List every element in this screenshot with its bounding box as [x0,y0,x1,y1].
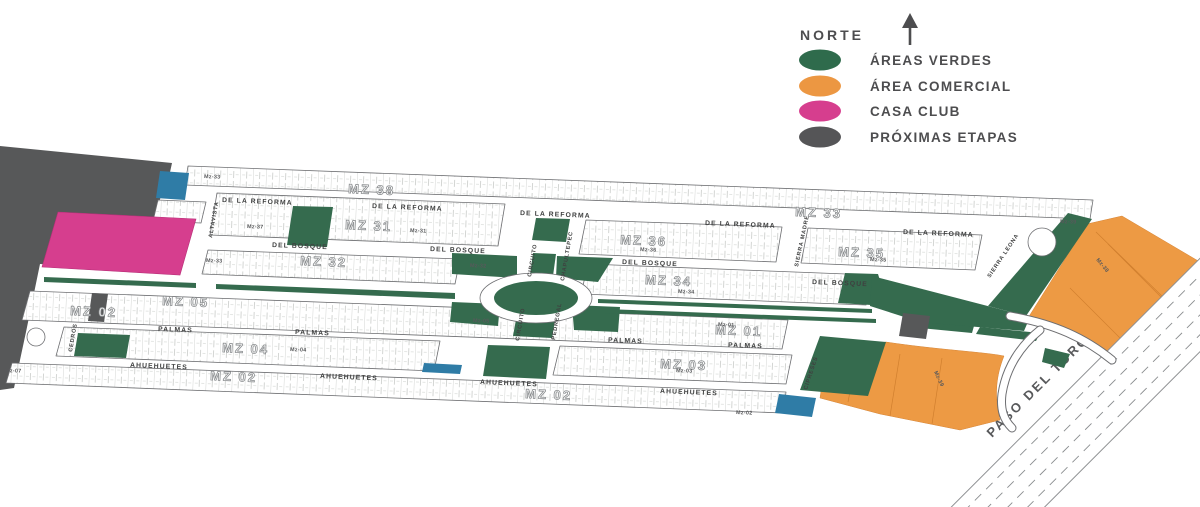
block-label-small: Mz-39 [1060,219,1077,226]
block-label: MZ 38 [348,181,395,198]
block-label-small: Mz-31 [410,228,427,235]
green-park-central [483,345,550,379]
master-plan-svg: PASO DEL TORO [0,0,1200,507]
block-label-small: Mz-33 [206,258,223,265]
north-label: NORTE [800,27,864,43]
block-label: MZ 34 [645,272,692,289]
roundabout-center [494,281,578,315]
block-label-small: Mz-36 [640,247,657,254]
legend-item-area-comercial: ÁREA COMERCIAL [799,76,1011,97]
block-label-small: Mz-37 [247,224,264,231]
street-label: PALMAS [728,342,763,350]
legend-item-label: CASA CLUB [870,104,961,119]
legend-item-label: ÁREA COMERCIAL [870,79,1011,94]
block-label: MZ 02 [70,303,117,320]
casa-club-area [42,212,196,275]
area-comercial-swatch [799,76,841,97]
block-label-small: Mz-01 [718,322,735,329]
block-label: MZ 33 [795,204,842,221]
block-label: MZ 04 [222,340,269,357]
block-label-small: Mz-33 [204,174,221,181]
block-label: MZ 02 [525,386,572,403]
site-plan-map: PASO DEL TORO [0,0,1200,507]
block-label-small: Mz-03 [676,368,693,375]
street-label: PALMAS [608,337,643,345]
green-park-north [532,218,570,242]
legend-item-label: ÁREAS VERDES [870,53,992,68]
block-label: MZ 02 [210,368,257,385]
areas-verdes-swatch [799,50,841,71]
block-label: MZ 31 [345,217,392,234]
street-label: PALMAS [158,326,193,334]
block-label-small: Mz-32 [470,263,487,270]
legend-item-areas-verdes: ÁREAS VERDES [799,50,992,71]
block-label-small: Mz-35 [870,257,887,264]
avenue-bridge [899,313,930,339]
legend-item-casa-club: CASA CLUB [799,101,961,122]
block-label-small: Mz-05 [473,318,490,325]
blue-feature-northwest [156,171,189,200]
block-label: MZ 05 [162,293,209,310]
casa-club-swatch [799,101,841,122]
block-label-small: Mz-34 [678,289,695,296]
cul-de-sac-northeast [1028,228,1056,256]
green-park-mz31 [287,206,333,247]
street-label: PALMAS [295,329,330,337]
block-label-small: Mz-02 [736,410,753,417]
block-label-small: Mz-07 [5,368,22,375]
legend-item-label: PRÓXIMAS ETAPAS [870,130,1018,145]
block-label: MZ 32 [300,253,347,270]
cul-de-sac-west [27,328,45,346]
green-park-mz04 [74,333,130,358]
block-label-small: Mz-04 [290,347,307,354]
proximas-etapas-swatch [799,127,841,148]
blue-feature-southeast [775,394,816,417]
legend-item-proximas-etapas: PRÓXIMAS ETAPAS [799,127,1018,148]
